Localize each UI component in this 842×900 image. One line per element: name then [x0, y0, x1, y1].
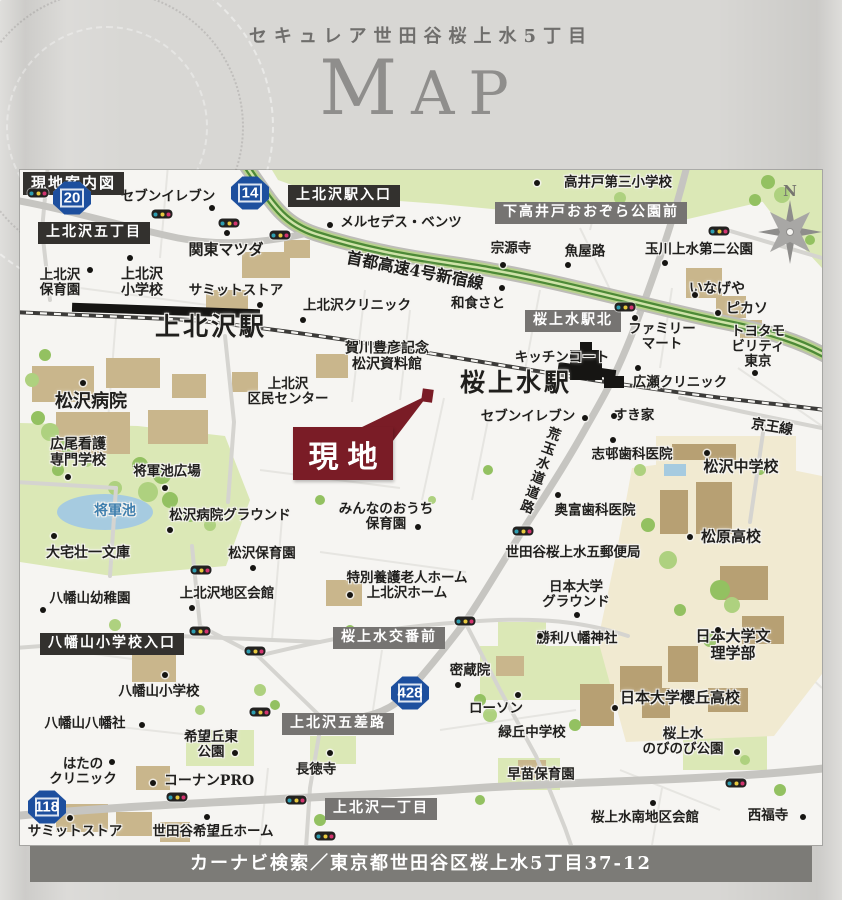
map-label: 日本大学櫻丘高校 [620, 690, 740, 707]
map-label: 高井戸第三小学校 [564, 175, 672, 190]
poi-dot [40, 607, 46, 613]
map-label: 上北沢 保育園 [40, 268, 81, 298]
map-label: 桜上水駅 [460, 369, 572, 397]
poi-dot [662, 260, 668, 266]
poi-dot [455, 682, 461, 688]
traffic-signal-icon [250, 708, 271, 717]
poi-dot [515, 692, 521, 698]
map-label: 八幡山八幡社 [45, 716, 126, 731]
map-label: 八幡山小学校 [119, 684, 200, 699]
poi-dot [800, 814, 806, 820]
poi-dot [415, 524, 421, 530]
map-label: サミットストア [28, 824, 123, 839]
map-banner: 下高井戸おおぞら公園前 [495, 202, 687, 224]
traffic-signal-icon [152, 210, 173, 219]
poi-dot [632, 315, 638, 321]
map-label: 宗源寺 [491, 241, 532, 256]
map-label: ローソン [469, 701, 523, 716]
traffic-signal-icon [513, 527, 534, 536]
map-label: セブンイレブン [481, 409, 576, 424]
route-shield-14: 14 [231, 177, 269, 210]
map-label: コーナンPRO [164, 774, 254, 790]
poi-dot [610, 437, 616, 443]
map-label: 緑丘中学校 [498, 725, 566, 740]
poi-dot [204, 814, 210, 820]
map-label: 上北沢地区会館 [180, 586, 275, 601]
traffic-signal-icon [190, 627, 211, 636]
traffic-signal-icon [615, 303, 636, 312]
map-label: メルセデス・ベンツ [340, 215, 462, 230]
map-banner: 上北沢五差路 [282, 713, 394, 735]
poi-dot [65, 474, 71, 480]
poi-dot [327, 222, 333, 228]
compass-rose: N [758, 184, 822, 268]
poi-dot [692, 292, 698, 298]
route-shield-118: 118 [28, 791, 66, 824]
poi-dot [209, 205, 215, 211]
map-banner: 桜上水交番前 [333, 627, 445, 649]
poi-dot [167, 527, 173, 533]
map-label: サミットストア [189, 283, 284, 298]
map-label: 和食さと [451, 296, 505, 311]
map-label: 関東マツダ [188, 242, 263, 259]
map-label: ピカソ [726, 302, 768, 318]
map-banner: 桜上水駅北 [525, 310, 621, 332]
poi-dot [752, 370, 758, 376]
page-title: MAP [0, 46, 842, 130]
map-label: はたの クリニック [49, 757, 117, 787]
map-label: 世田谷希望丘ホーム [152, 824, 273, 839]
poi-dot [127, 255, 133, 261]
map-label: 早苗保育園 [507, 767, 575, 782]
map-banner: 上北沢駅入口 [288, 185, 400, 207]
poi-dot [150, 780, 156, 786]
poi-dot [555, 492, 561, 498]
poi-dot [67, 815, 73, 821]
traffic-signal-icon [191, 566, 212, 575]
map-label: 松沢病院グラウンド [169, 508, 291, 523]
poi-dot [232, 750, 238, 756]
map-label: 将軍池 [94, 504, 136, 520]
traffic-signal-icon [315, 832, 336, 841]
poi-dot [734, 749, 740, 755]
poi-dot [300, 317, 306, 323]
map-label: 京王線 [750, 417, 794, 439]
map-label: 賀川豊彦記念 松沢資料館 [345, 341, 429, 372]
map-label: 日本大学 グラウンド [542, 580, 610, 610]
map-label: 上北沢 区民センター [248, 377, 329, 407]
compass-star-icon [758, 200, 822, 264]
map-label: 松原高校 [701, 529, 761, 546]
poi-dot [635, 365, 641, 371]
poi-dot [704, 450, 710, 456]
car-navi-address-bar: カーナビ検索／東京都世田谷区桜上水5丁目37-12 [30, 846, 812, 882]
poi-dot [612, 705, 618, 711]
poi-dot [534, 180, 540, 186]
traffic-signal-icon [726, 779, 747, 788]
map-label: セブンイレブン [121, 189, 216, 204]
map-canvas: セブンイレブンメルセデス・ベンツ高井戸第三小学校宗源寺魚屋路玉川上水第二公園関東… [20, 170, 822, 845]
map-label: すき家 [614, 408, 655, 423]
map-label: 将軍池広場 [133, 464, 201, 479]
poi-dot [715, 627, 721, 633]
map-label: 上北沢駅 [155, 313, 267, 341]
map-banner: 上北沢五丁目 [38, 222, 150, 244]
traffic-signal-icon [709, 227, 730, 236]
poi-dot [51, 533, 57, 539]
poi-dot [537, 633, 543, 639]
map-label: 勝利八幡神社 [537, 631, 618, 646]
map-label: 八幡山幼稚園 [50, 591, 131, 606]
map-label: キッチンコート [515, 350, 610, 365]
poi-dot [650, 800, 656, 806]
map-label: 桜上水南地区会館 [591, 810, 699, 825]
poi-dot [109, 759, 115, 765]
traffic-signal-icon [286, 796, 307, 805]
map-banner: 八幡山小学校入口 [40, 633, 184, 655]
poi-dot [611, 413, 617, 419]
poi-dot [582, 415, 588, 421]
map-label: 奥富歯科医院 [555, 503, 636, 518]
poi-dot [499, 285, 505, 291]
poi-dot [687, 534, 693, 540]
map-label: 西福寺 [748, 808, 789, 823]
page-subtitle: セキュレア世田谷桜上水5丁目 [0, 22, 842, 48]
map-label: 上北沢クリニック [303, 298, 411, 313]
poi-dot [565, 262, 571, 268]
site-callout: 現地 [293, 427, 393, 480]
poi-dot [327, 750, 333, 756]
poi-dot [250, 565, 256, 571]
traffic-signal-icon [167, 793, 188, 802]
map-label: 密蔵院 [450, 663, 491, 678]
map-label: ファミリー マート [628, 322, 696, 352]
poi-dot [87, 267, 93, 273]
poi-dot [224, 230, 230, 236]
map-label: 桜上水 のびのび公園 [643, 727, 724, 757]
poi-dot [347, 592, 353, 598]
map-label: 長徳寺 [296, 762, 337, 777]
poi-dot [162, 485, 168, 491]
poi-dot [715, 310, 721, 316]
map-banner: 上北沢一丁目 [325, 798, 437, 820]
map-overlay: セブンイレブンメルセデス・ベンツ高井戸第三小学校宗源寺魚屋路玉川上水第二公園関東… [20, 170, 822, 845]
poi-dot [139, 722, 145, 728]
map-label: 松沢病院 [55, 392, 127, 412]
traffic-signal-icon [270, 231, 291, 240]
north-label: N [758, 184, 822, 199]
traffic-signal-icon [219, 219, 240, 228]
map-label: 希望丘東 公園 [184, 730, 238, 760]
map-label: トヨタモビリティ 東京 [726, 324, 790, 369]
map-label: 世田谷桜上水五郵便局 [506, 545, 641, 560]
poi-dot [500, 262, 506, 268]
map-label: 首都高速4号新宿線 [345, 249, 485, 293]
page-background: { "page": { "subtitle": "セキュレア世田谷桜上水5丁目"… [0, 0, 842, 900]
poi-dot [257, 302, 263, 308]
map-label: 日本大学文理学部 [689, 628, 778, 662]
traffic-signal-icon [455, 617, 476, 626]
map-label: 特別養護老人ホーム 上北沢ホーム [346, 571, 467, 601]
traffic-signal-icon [28, 189, 49, 198]
map-label: 松沢中学校 [703, 459, 778, 476]
poi-dot [162, 672, 168, 678]
map-label: 大宅壮一文庫 [46, 546, 130, 562]
map-label: 松沢保育園 [228, 546, 296, 561]
poi-dot [574, 612, 580, 618]
map-label: 広尾看護 専門学校 [50, 437, 106, 468]
map-label: 魚屋路 [565, 244, 606, 259]
route-shield-428: 428 [391, 677, 429, 710]
map-label: 志邨歯科医院 [592, 447, 673, 462]
map-label: 上北沢 小学校 [121, 267, 163, 298]
poi-dot [80, 380, 86, 386]
poi-dot [189, 605, 195, 611]
traffic-signal-icon [245, 647, 266, 656]
map-label: 広瀬クリニック [633, 375, 728, 390]
map-label: 玉川上水第二公園 [645, 242, 753, 257]
